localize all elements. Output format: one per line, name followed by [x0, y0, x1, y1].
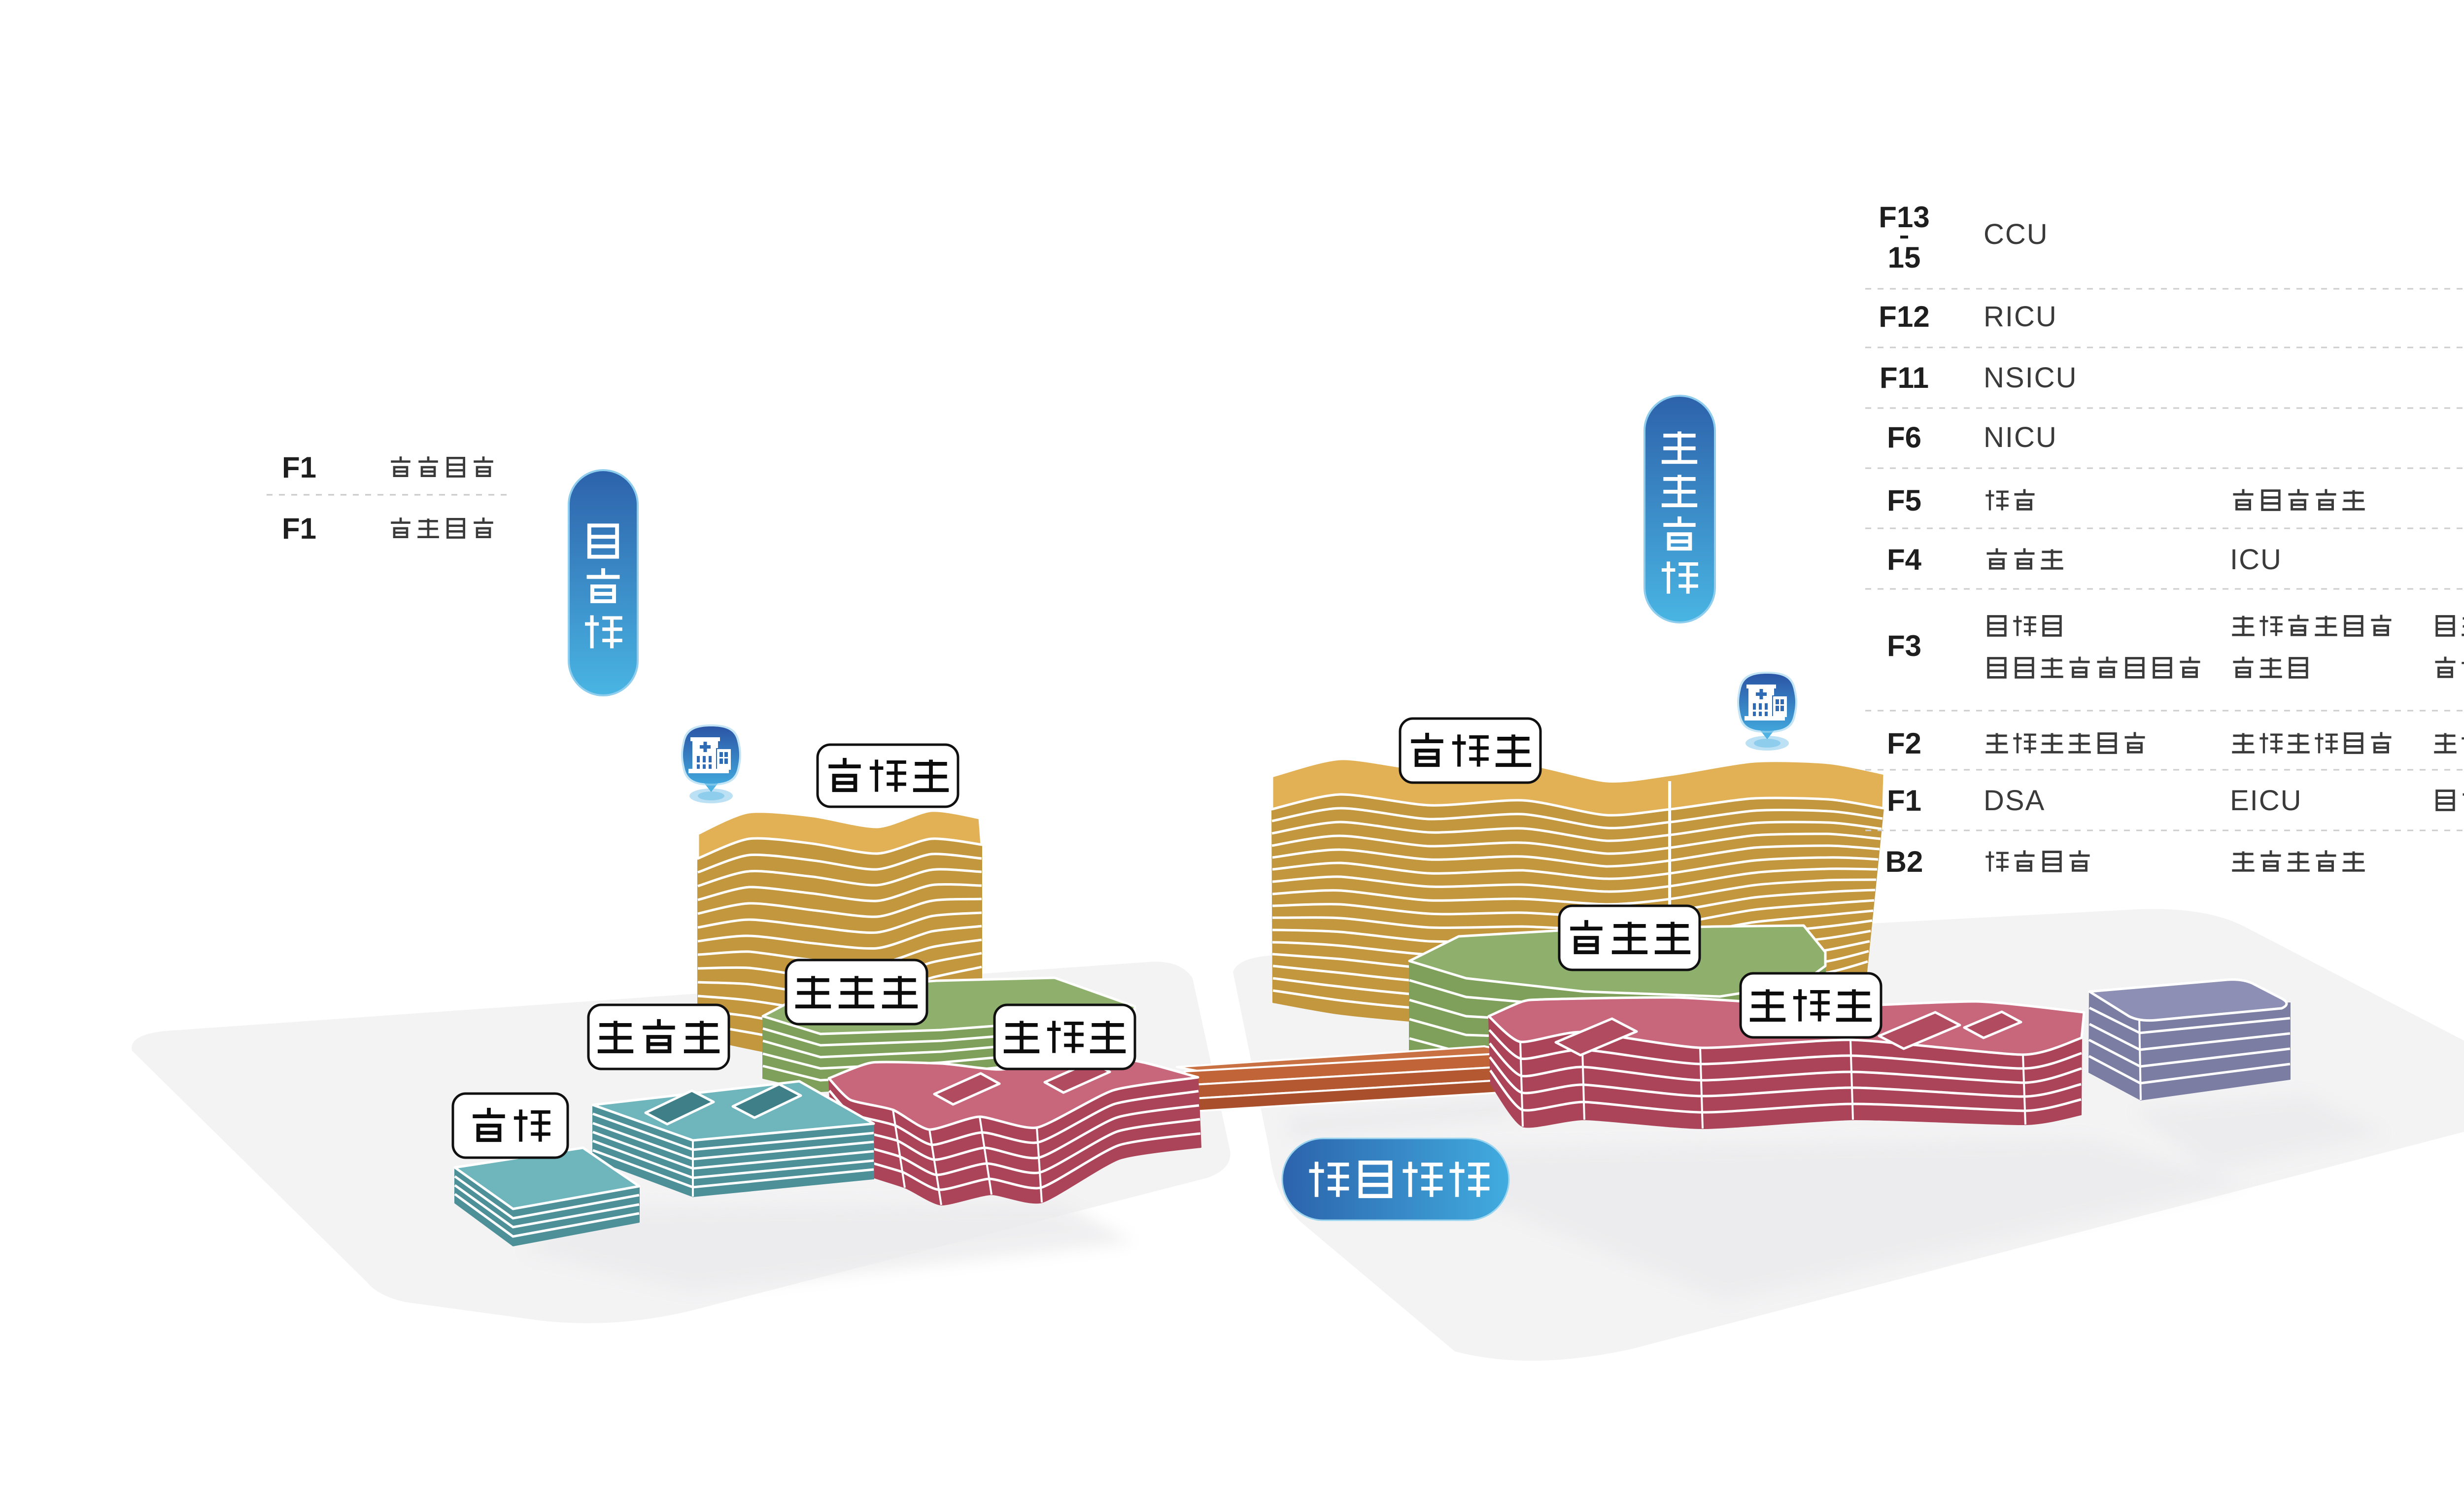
svg-text:F1: F1	[282, 451, 316, 484]
svg-text:B2: B2	[1885, 845, 1923, 878]
svg-text:F4: F4	[1887, 543, 1922, 576]
svg-text:NSICU: NSICU	[1984, 362, 2077, 394]
svg-text:F6: F6	[1887, 421, 1921, 454]
svg-text:EICU: EICU	[2230, 785, 2302, 817]
svg-text:RICU: RICU	[1984, 301, 2057, 333]
svg-text:F1: F1	[1887, 784, 1921, 817]
svg-text:F2: F2	[1887, 727, 1921, 760]
svg-text:F5: F5	[1887, 484, 1921, 517]
svg-text:F3: F3	[1887, 629, 1921, 662]
svg-text:ICU: ICU	[2230, 544, 2282, 576]
svg-text:F12: F12	[1879, 300, 1929, 333]
svg-text:F1: F1	[282, 512, 316, 545]
svg-text:DSA: DSA	[1984, 785, 2045, 817]
svg-text:NICU: NICU	[1984, 421, 2057, 453]
svg-text:F13: F13	[1879, 201, 1929, 234]
svg-text:F11: F11	[1880, 361, 1929, 394]
svg-text:15: 15	[1888, 241, 1921, 274]
svg-text:CCU: CCU	[1984, 218, 2049, 250]
